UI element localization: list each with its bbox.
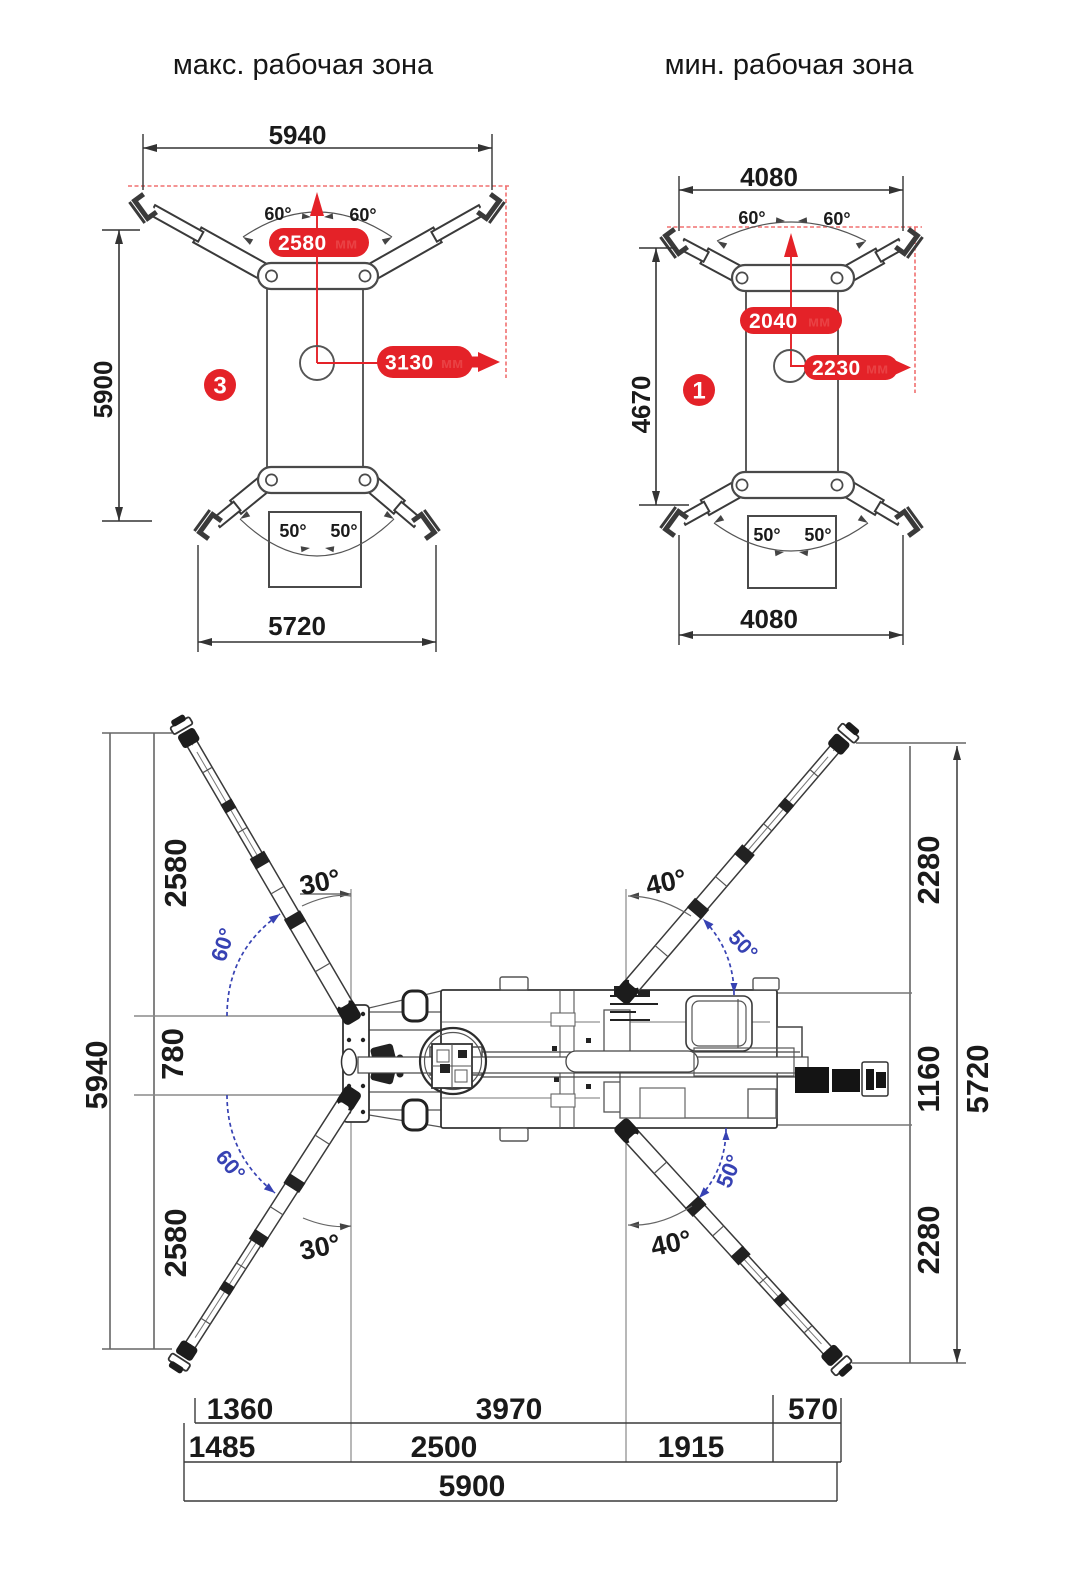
svg-text:50°: 50° [279,521,306,541]
svg-text:780: 780 [155,1028,190,1080]
svg-text:4670: 4670 [626,376,656,434]
svg-text:5940: 5940 [79,1041,114,1110]
svg-text:1: 1 [692,378,705,405]
svg-text:2580: 2580 [158,1209,193,1278]
svg-text:3130: 3130 [385,352,434,375]
svg-text:2580: 2580 [158,839,193,908]
svg-text:60°: 60° [823,209,850,229]
svg-text:60°: 60° [264,204,291,224]
svg-text:2040: 2040 [749,310,798,333]
svg-text:1915: 1915 [658,1431,725,1464]
svg-text:50°: 50° [330,521,357,541]
svg-text:2230: 2230 [812,357,861,380]
svg-text:5940: 5940 [269,120,327,150]
svg-text:60°: 60° [738,208,765,228]
svg-text:4080: 4080 [740,604,798,634]
svg-text:мин. рабочая зона: мин. рабочая зона [665,49,915,81]
svg-text:5720: 5720 [268,611,326,641]
svg-text:1485: 1485 [189,1431,256,1464]
svg-text:мм: мм [808,314,830,331]
svg-text:2500: 2500 [411,1431,478,1464]
svg-text:3: 3 [213,373,226,400]
svg-text:60°: 60° [349,205,376,225]
svg-text:570: 570 [788,1393,838,1426]
svg-text:3970: 3970 [476,1393,543,1426]
svg-text:50°: 50° [804,525,831,545]
svg-text:1160: 1160 [911,1045,946,1112]
svg-text:5900: 5900 [439,1470,506,1503]
svg-text:2280: 2280 [911,836,946,905]
svg-text:мм: мм [441,355,463,372]
svg-text:мм: мм [335,236,357,253]
svg-text:4080: 4080 [740,162,798,192]
svg-text:макс. рабочая зона: макс. рабочая зона [173,49,434,81]
svg-text:2280: 2280 [911,1206,946,1275]
svg-text:2580: 2580 [278,232,327,255]
svg-text:1360: 1360 [207,1393,274,1426]
svg-text:мм: мм [866,361,888,378]
svg-text:5900: 5900 [88,361,118,419]
svg-text:5720: 5720 [960,1045,995,1114]
svg-text:50°: 50° [753,525,780,545]
